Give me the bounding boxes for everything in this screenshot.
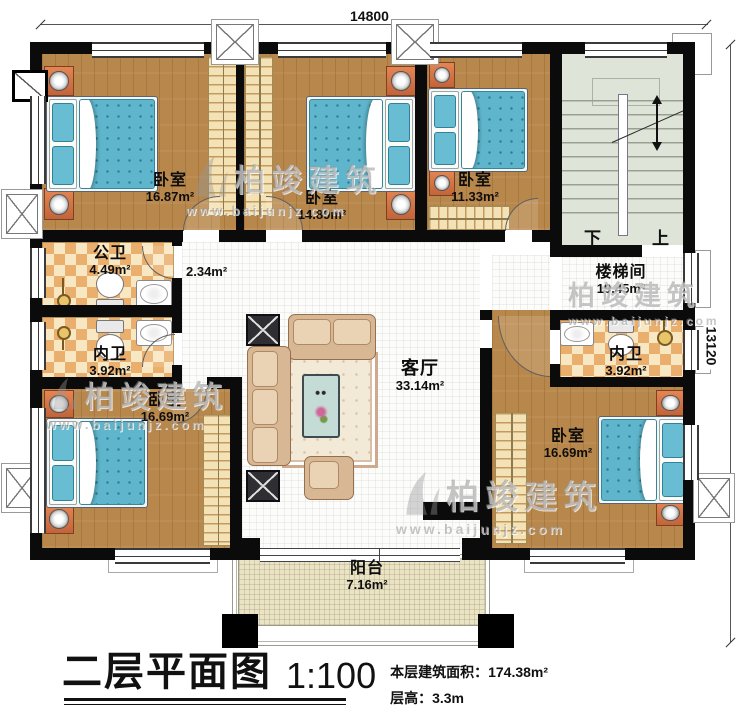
sofa-cushion <box>252 351 278 387</box>
sofa-cushion <box>252 389 278 425</box>
sofa-cushion <box>333 319 371 345</box>
bed-headboard <box>49 421 77 505</box>
pillow <box>52 146 74 185</box>
wall-segment <box>550 54 562 257</box>
room-label-bedroom-bottom-right: 卧室 16.69m² <box>522 428 614 461</box>
building-area-text: 本层建筑面积：174.38m² <box>390 662 548 682</box>
wall-segment <box>550 310 683 320</box>
stair-arrow-down <box>652 142 662 151</box>
dimension-top-value: 14800 <box>346 8 393 24</box>
sofa-cushion <box>252 427 278 463</box>
room-label-bedroom-top-middle: 卧室 14.89m² <box>278 190 366 223</box>
wall-segment <box>236 54 244 230</box>
nightstand <box>44 188 74 220</box>
bed-headboard <box>385 99 413 189</box>
wall-segment <box>550 318 560 330</box>
room-area: 16.69m² <box>120 410 210 425</box>
pilaster-xbox <box>216 24 254 60</box>
pillow <box>388 103 410 142</box>
room-area: 16.87m² <box>128 190 212 205</box>
room-name: 内卫 <box>70 346 150 364</box>
pillow <box>388 146 410 185</box>
room-label-living-room: 客厅 33.14m² <box>374 358 466 394</box>
window <box>683 425 699 480</box>
pillow <box>434 132 456 165</box>
room-area: 16.69m² <box>522 446 614 461</box>
pillow <box>662 423 684 458</box>
room-name: 客厅 <box>374 358 466 379</box>
room-label-bathroom-left: 内卫 3.92m² <box>70 346 150 379</box>
bed-duvet <box>461 91 525 169</box>
window <box>92 42 204 58</box>
balcony-pillar <box>478 614 514 648</box>
room-area: 33.14m² <box>374 379 466 394</box>
sink <box>560 322 594 346</box>
wall-segment <box>302 230 505 242</box>
pilaster-xbox <box>698 478 730 518</box>
bed-headboard <box>431 91 459 169</box>
wardrobe <box>208 56 237 216</box>
end-table <box>246 314 280 346</box>
window <box>683 253 699 303</box>
room-name: 阳台 <box>324 560 410 578</box>
window <box>30 408 46 533</box>
wall-segment <box>562 245 642 257</box>
wall-segment <box>462 538 488 560</box>
room-area: 3.92m² <box>588 364 664 379</box>
room-area: 19.45m² <box>574 282 668 297</box>
sofa-cushion <box>309 461 339 489</box>
room-name: 公卫 <box>70 245 150 263</box>
armchair <box>304 456 354 500</box>
wall-segment <box>480 310 492 320</box>
title-underline <box>64 704 346 705</box>
room-area: 4.49m² <box>70 263 150 278</box>
stair-direction-arrow <box>656 104 658 142</box>
coffee-table <box>302 374 340 438</box>
dimension-line-right <box>730 45 731 643</box>
nightstand <box>386 188 416 220</box>
window <box>430 42 522 58</box>
shower-head <box>657 330 673 346</box>
room-area: 3.92m² <box>70 364 150 379</box>
wall-segment <box>230 389 242 548</box>
nightstand <box>386 66 416 96</box>
title-underline <box>64 698 346 701</box>
room-label-bedroom-bottom-left: 卧室 16.69m² <box>120 392 210 425</box>
wall-segment <box>532 230 562 242</box>
window <box>30 322 46 370</box>
bed-duvet <box>79 421 145 505</box>
dimension-line-top <box>40 24 708 25</box>
room-label-public-bathroom: 公卫 4.49m² <box>70 245 150 278</box>
balcony-pillar <box>222 614 258 648</box>
sofa <box>247 346 291 466</box>
hallway-area-label: 2.34m² <box>186 264 227 279</box>
wall-segment <box>172 317 182 333</box>
wall-segment <box>172 365 182 389</box>
window <box>30 248 46 298</box>
sofa-cushion <box>293 319 331 345</box>
floor-passage <box>492 255 550 310</box>
window <box>278 42 386 58</box>
room-name: 卧室 <box>120 392 210 410</box>
sink <box>136 280 172 308</box>
window <box>683 330 699 370</box>
room-name: 卧室 <box>522 428 614 446</box>
nightstand <box>44 390 74 418</box>
pillow <box>434 95 456 128</box>
room-name: 内卫 <box>588 346 664 364</box>
floor-plan-page: 14800 13120 <box>0 0 750 709</box>
wall-segment <box>550 364 560 377</box>
room-name: 卧室 <box>432 172 518 190</box>
nightstand <box>44 504 74 534</box>
nightstand <box>656 390 685 416</box>
bed-duvet <box>309 99 383 189</box>
pilaster-xbox <box>6 194 38 234</box>
wall-segment <box>234 538 260 560</box>
toilet-tank <box>608 320 634 333</box>
room-name: 卧室 <box>278 190 366 208</box>
room-area: 11.33m² <box>432 190 518 205</box>
wall-segment <box>172 230 182 246</box>
room-area: 7.16m² <box>324 578 410 593</box>
window <box>585 42 667 58</box>
wall-segment <box>30 305 182 317</box>
floor-height-text: 层高：3.3m <box>390 688 548 708</box>
room-label-balcony: 阳台 7.16m² <box>324 560 410 593</box>
pillow <box>52 103 74 142</box>
end-table <box>246 470 280 502</box>
stair-rail <box>618 94 628 236</box>
sofa <box>288 314 376 360</box>
wall-segment <box>219 230 266 242</box>
pillow <box>52 465 74 501</box>
window <box>115 548 210 564</box>
room-label-bedroom-top-right: 卧室 11.33m² <box>432 172 518 205</box>
bed <box>428 88 528 172</box>
wardrobe <box>428 206 510 230</box>
stair-up-label: 上 <box>652 224 669 249</box>
pillow <box>52 425 74 461</box>
window <box>530 548 625 564</box>
stair-down-label: 下 <box>584 224 601 249</box>
room-name: 楼梯间 <box>574 264 668 282</box>
room-label-stairwell: 楼梯间 19.45m² <box>574 264 668 297</box>
toilet-tank <box>96 320 124 333</box>
bed <box>46 418 148 508</box>
room-area: 14.89m² <box>278 208 366 223</box>
window <box>30 96 46 184</box>
bed-headboard <box>49 99 77 189</box>
nightstand <box>44 66 74 96</box>
nightstand <box>429 62 455 88</box>
towel-knob <box>57 326 71 340</box>
wardrobe <box>203 414 232 546</box>
wall-segment <box>423 502 492 520</box>
room-label-bedroom-top-left: 卧室 16.87m² <box>128 172 212 205</box>
wall-segment <box>207 377 242 389</box>
wardrobe <box>245 56 273 216</box>
room-label-bathroom-right: 内卫 3.92m² <box>588 346 664 379</box>
room-name: 卧室 <box>128 172 212 190</box>
dimension-right-value: 13120 <box>703 323 719 370</box>
bed <box>306 96 416 192</box>
stair-arrow-up <box>652 95 662 104</box>
pillow <box>662 462 684 497</box>
wall-segment <box>415 54 427 242</box>
pilaster-xbox <box>396 24 434 60</box>
page-title: 二层平面图 <box>62 652 272 692</box>
wall-segment <box>42 230 183 242</box>
drawing-scale: 1:100 <box>286 658 376 694</box>
